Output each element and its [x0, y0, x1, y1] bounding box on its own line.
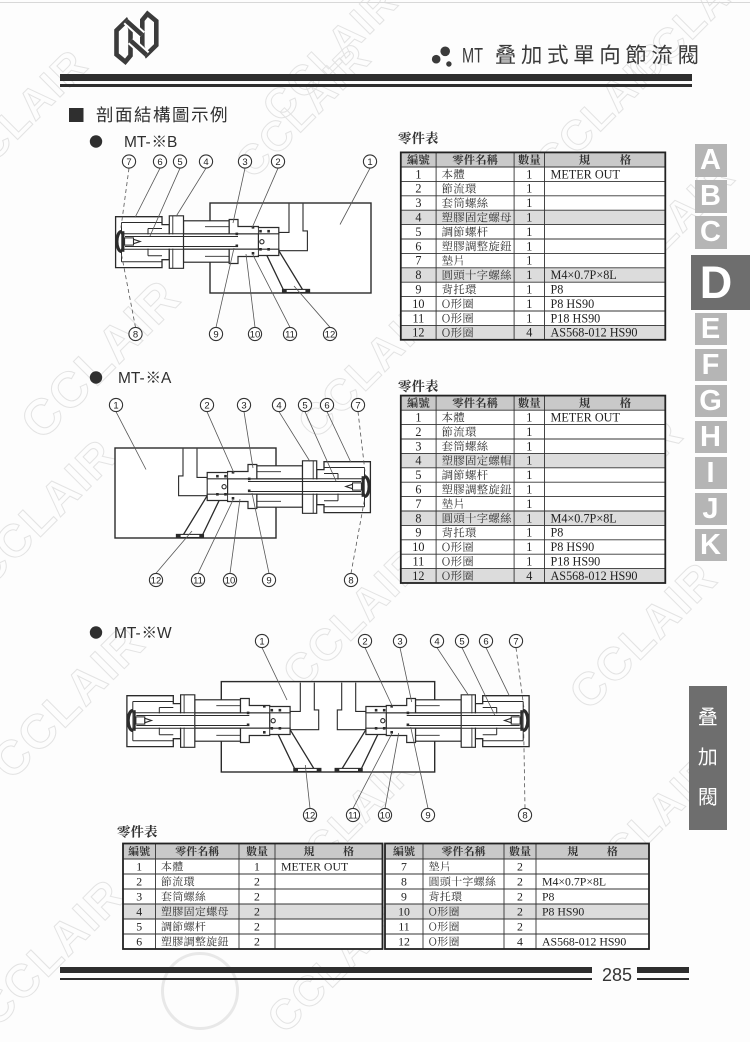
svg-text:P8: P8 — [551, 283, 564, 297]
svg-text:M4×0.7P×8L: M4×0.7P×8L — [542, 875, 606, 889]
svg-text:1: 1 — [259, 636, 264, 647]
svg-text:1: 1 — [526, 297, 532, 311]
svg-text:1: 1 — [113, 400, 118, 411]
svg-text:9: 9 — [415, 283, 421, 297]
svg-text:9: 9 — [266, 575, 271, 586]
svg-text:5: 5 — [177, 157, 182, 168]
svg-text:2: 2 — [517, 875, 523, 889]
svg-text:12: 12 — [305, 810, 316, 821]
svg-text:4: 4 — [415, 211, 421, 225]
svg-text:10: 10 — [398, 905, 410, 919]
svg-text:1: 1 — [526, 555, 532, 569]
svg-text:1: 1 — [526, 454, 532, 468]
svg-text:4: 4 — [517, 935, 523, 949]
svg-text:9: 9 — [425, 810, 430, 821]
svg-text:1: 1 — [367, 157, 372, 168]
svg-text:11: 11 — [413, 311, 425, 325]
svg-text:6: 6 — [483, 636, 488, 647]
svg-text:2: 2 — [517, 920, 523, 934]
svg-text:7: 7 — [415, 254, 421, 268]
svg-text:12: 12 — [151, 575, 162, 586]
svg-text:12: 12 — [412, 569, 424, 583]
svg-text:AS568-012 HS90: AS568-012 HS90 — [551, 326, 638, 340]
svg-text:MT: MT — [462, 44, 483, 68]
svg-text:2: 2 — [254, 920, 260, 934]
svg-text:2: 2 — [517, 905, 523, 919]
svg-text:3: 3 — [242, 157, 247, 168]
svg-text:1: 1 — [526, 254, 532, 268]
svg-text:11: 11 — [398, 920, 409, 934]
svg-text:6: 6 — [157, 157, 162, 168]
svg-text:12: 12 — [412, 326, 424, 340]
svg-text:4: 4 — [526, 326, 532, 340]
svg-text:3: 3 — [397, 636, 402, 647]
svg-text:10: 10 — [412, 297, 424, 311]
svg-text:1: 1 — [526, 526, 532, 540]
svg-text:6: 6 — [415, 239, 421, 253]
svg-text:1: 1 — [415, 167, 421, 181]
svg-text:1: 1 — [526, 483, 532, 497]
svg-text:1: 1 — [526, 182, 532, 196]
svg-text:7: 7 — [126, 157, 131, 168]
svg-text:7: 7 — [355, 400, 360, 411]
svg-text:3: 3 — [415, 439, 421, 453]
svg-text:10: 10 — [250, 329, 261, 340]
svg-text:2: 2 — [254, 875, 260, 889]
svg-text:M4×0.7P×8L: M4×0.7P×8L — [551, 511, 617, 525]
svg-text:8: 8 — [522, 810, 527, 821]
svg-text:P8 HS90: P8 HS90 — [542, 905, 584, 919]
svg-text:1: 1 — [526, 268, 532, 282]
svg-text:P8: P8 — [542, 890, 555, 904]
svg-text:5: 5 — [302, 400, 307, 411]
svg-text:4: 4 — [203, 157, 208, 168]
svg-text:1: 1 — [526, 497, 532, 511]
svg-text:9: 9 — [213, 329, 218, 340]
svg-text:9: 9 — [415, 526, 421, 540]
svg-text:6: 6 — [136, 935, 142, 949]
svg-text:11: 11 — [193, 575, 203, 586]
svg-text:8: 8 — [401, 875, 407, 889]
svg-text:5: 5 — [136, 920, 142, 934]
svg-text:2: 2 — [275, 157, 280, 168]
svg-text:2: 2 — [254, 935, 260, 949]
svg-text:5: 5 — [415, 468, 421, 482]
svg-text:2: 2 — [204, 400, 209, 411]
svg-text:1: 1 — [526, 196, 532, 210]
svg-text:7: 7 — [513, 636, 518, 647]
svg-text:1: 1 — [526, 211, 532, 225]
svg-text:7: 7 — [415, 497, 421, 511]
svg-text:AS568-012 HS90: AS568-012 HS90 — [551, 569, 638, 583]
svg-text:8: 8 — [415, 511, 421, 525]
svg-text:3: 3 — [241, 400, 246, 411]
svg-text:3: 3 — [136, 890, 142, 904]
svg-text:1: 1 — [526, 283, 532, 297]
svg-text:1: 1 — [526, 540, 532, 554]
svg-text:2: 2 — [136, 875, 142, 889]
svg-text:4: 4 — [276, 400, 281, 411]
svg-text:12: 12 — [398, 935, 410, 949]
svg-text:2: 2 — [415, 182, 421, 196]
svg-text:METER OUT: METER OUT — [551, 411, 621, 425]
svg-text:7: 7 — [401, 860, 407, 874]
svg-text:2: 2 — [415, 425, 421, 439]
svg-text:P18 HS90: P18 HS90 — [551, 555, 601, 569]
svg-text:4: 4 — [434, 636, 439, 647]
svg-text:6: 6 — [324, 400, 329, 411]
svg-text:8: 8 — [133, 329, 138, 340]
svg-text:1: 1 — [526, 311, 532, 325]
svg-text:2: 2 — [362, 636, 367, 647]
svg-text:P18 HS90: P18 HS90 — [551, 311, 601, 325]
svg-text:4: 4 — [526, 569, 532, 583]
svg-text:1: 1 — [526, 511, 532, 525]
svg-text:1: 1 — [526, 167, 532, 181]
svg-text:1: 1 — [526, 411, 532, 425]
svg-text:10: 10 — [380, 810, 391, 821]
svg-text:P8 HS90: P8 HS90 — [551, 297, 595, 311]
svg-text:10: 10 — [412, 540, 424, 554]
svg-text:1: 1 — [526, 225, 532, 239]
svg-text:12: 12 — [325, 329, 336, 340]
svg-text:1: 1 — [526, 439, 532, 453]
svg-text:1: 1 — [415, 411, 421, 425]
svg-text:1: 1 — [526, 425, 532, 439]
svg-text:P8: P8 — [551, 526, 564, 540]
svg-text:2: 2 — [517, 860, 523, 874]
svg-text:1: 1 — [254, 860, 260, 874]
svg-text:5: 5 — [415, 225, 421, 239]
svg-text:8: 8 — [415, 268, 421, 282]
svg-text:1: 1 — [136, 860, 142, 874]
svg-text:10: 10 — [225, 575, 236, 586]
svg-text:9: 9 — [401, 890, 407, 904]
svg-text:11: 11 — [285, 329, 295, 340]
svg-text:11: 11 — [348, 810, 358, 821]
svg-text:5: 5 — [459, 636, 464, 647]
svg-text:3: 3 — [415, 196, 421, 210]
svg-text:4: 4 — [136, 905, 142, 919]
svg-text:2: 2 — [254, 905, 260, 919]
svg-text:2: 2 — [254, 890, 260, 904]
svg-text:AS568-012 HS90: AS568-012 HS90 — [542, 935, 626, 949]
svg-text:M4×0.7P×8L: M4×0.7P×8L — [551, 268, 617, 282]
svg-text:2: 2 — [517, 890, 523, 904]
svg-text:METER OUT: METER OUT — [551, 167, 621, 181]
svg-text:6: 6 — [415, 483, 421, 497]
svg-text:METER OUT: METER OUT — [281, 860, 349, 874]
svg-text:1: 1 — [526, 239, 532, 253]
svg-text:1: 1 — [526, 468, 532, 482]
svg-text:11: 11 — [413, 555, 425, 569]
svg-text:4: 4 — [415, 454, 421, 468]
svg-text:P8 HS90: P8 HS90 — [551, 540, 595, 554]
svg-text:8: 8 — [348, 575, 353, 586]
